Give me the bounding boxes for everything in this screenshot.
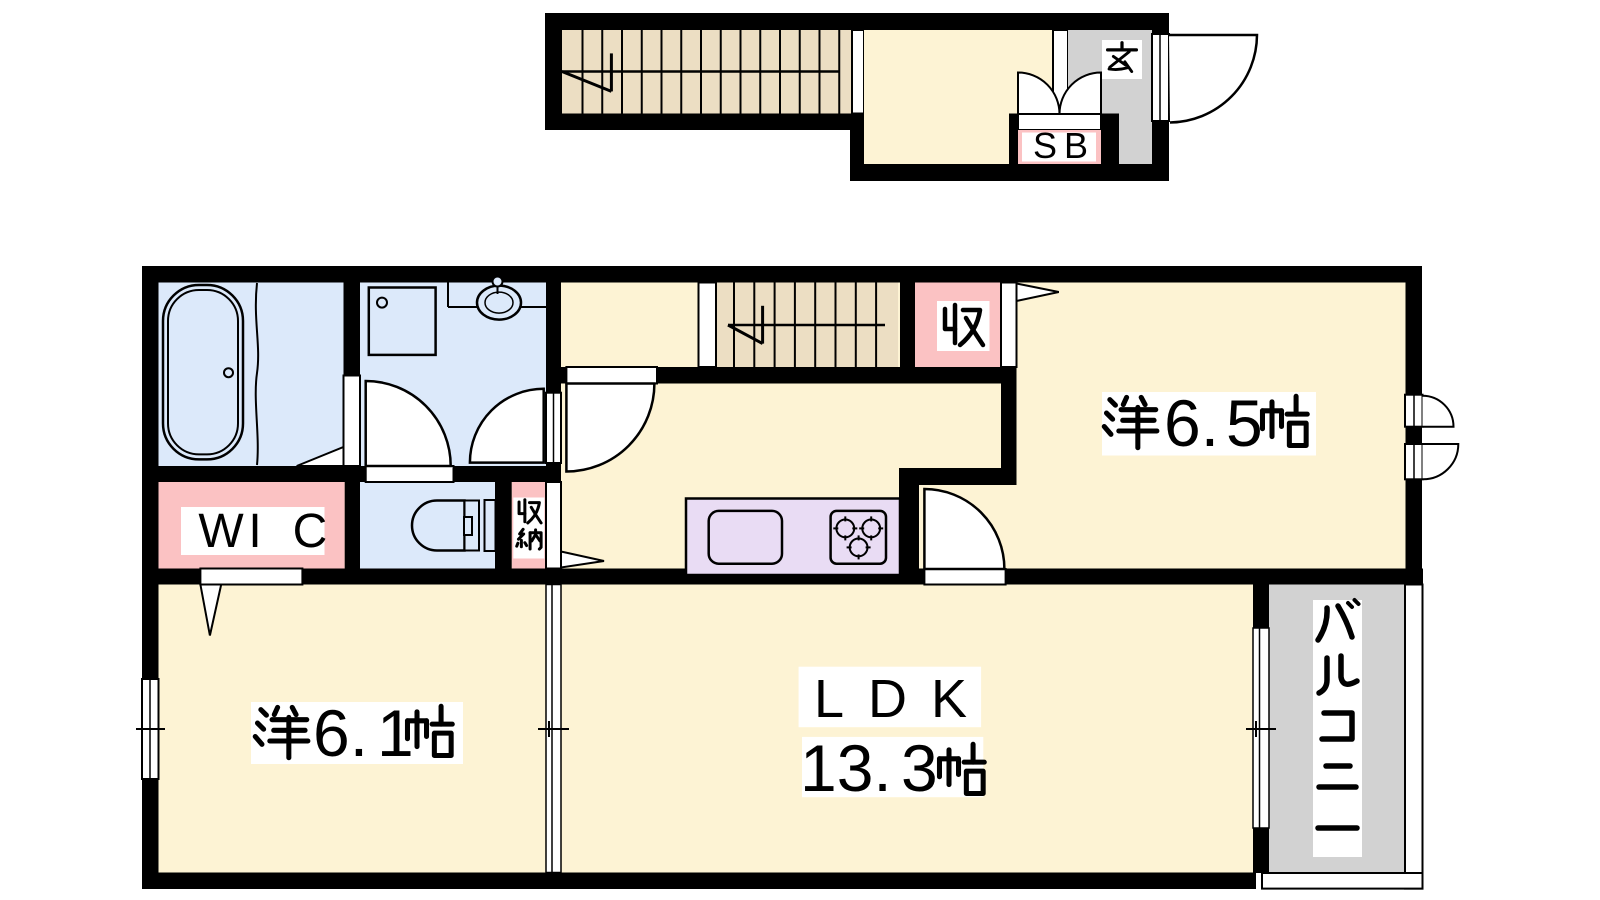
svg-text:SB: SB — [1033, 125, 1095, 166]
svg-text:6.: 6. — [1164, 386, 1219, 460]
svg-text:W: W — [198, 505, 244, 558]
svg-text:I: I — [248, 505, 261, 558]
svg-text:13.: 13. — [800, 731, 892, 805]
svg-text:LDK: LDK — [814, 669, 991, 729]
svg-text:3: 3 — [901, 731, 938, 805]
svg-text:C: C — [293, 505, 328, 558]
svg-text:6.: 6. — [313, 696, 368, 770]
svg-text:5: 5 — [1226, 386, 1263, 460]
